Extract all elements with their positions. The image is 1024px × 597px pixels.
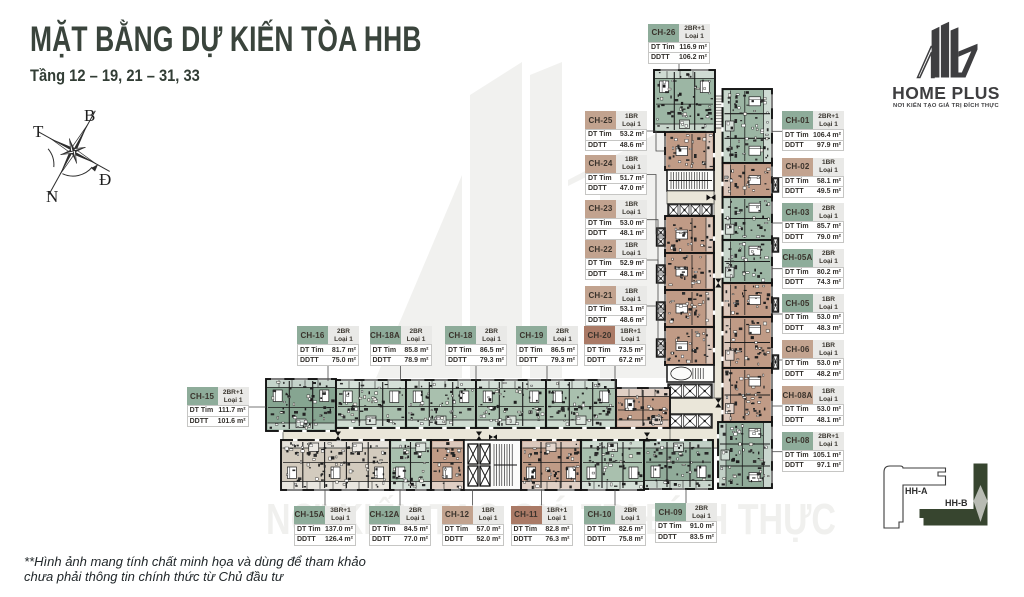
svg-text:HH-A: HH-A [905, 486, 928, 496]
svg-text:N: N [46, 187, 58, 206]
svg-text:Đ: Đ [99, 170, 111, 189]
svg-text:T: T [33, 122, 44, 141]
svg-text:HH-B: HH-B [945, 498, 968, 508]
svg-text:B: B [84, 106, 95, 125]
